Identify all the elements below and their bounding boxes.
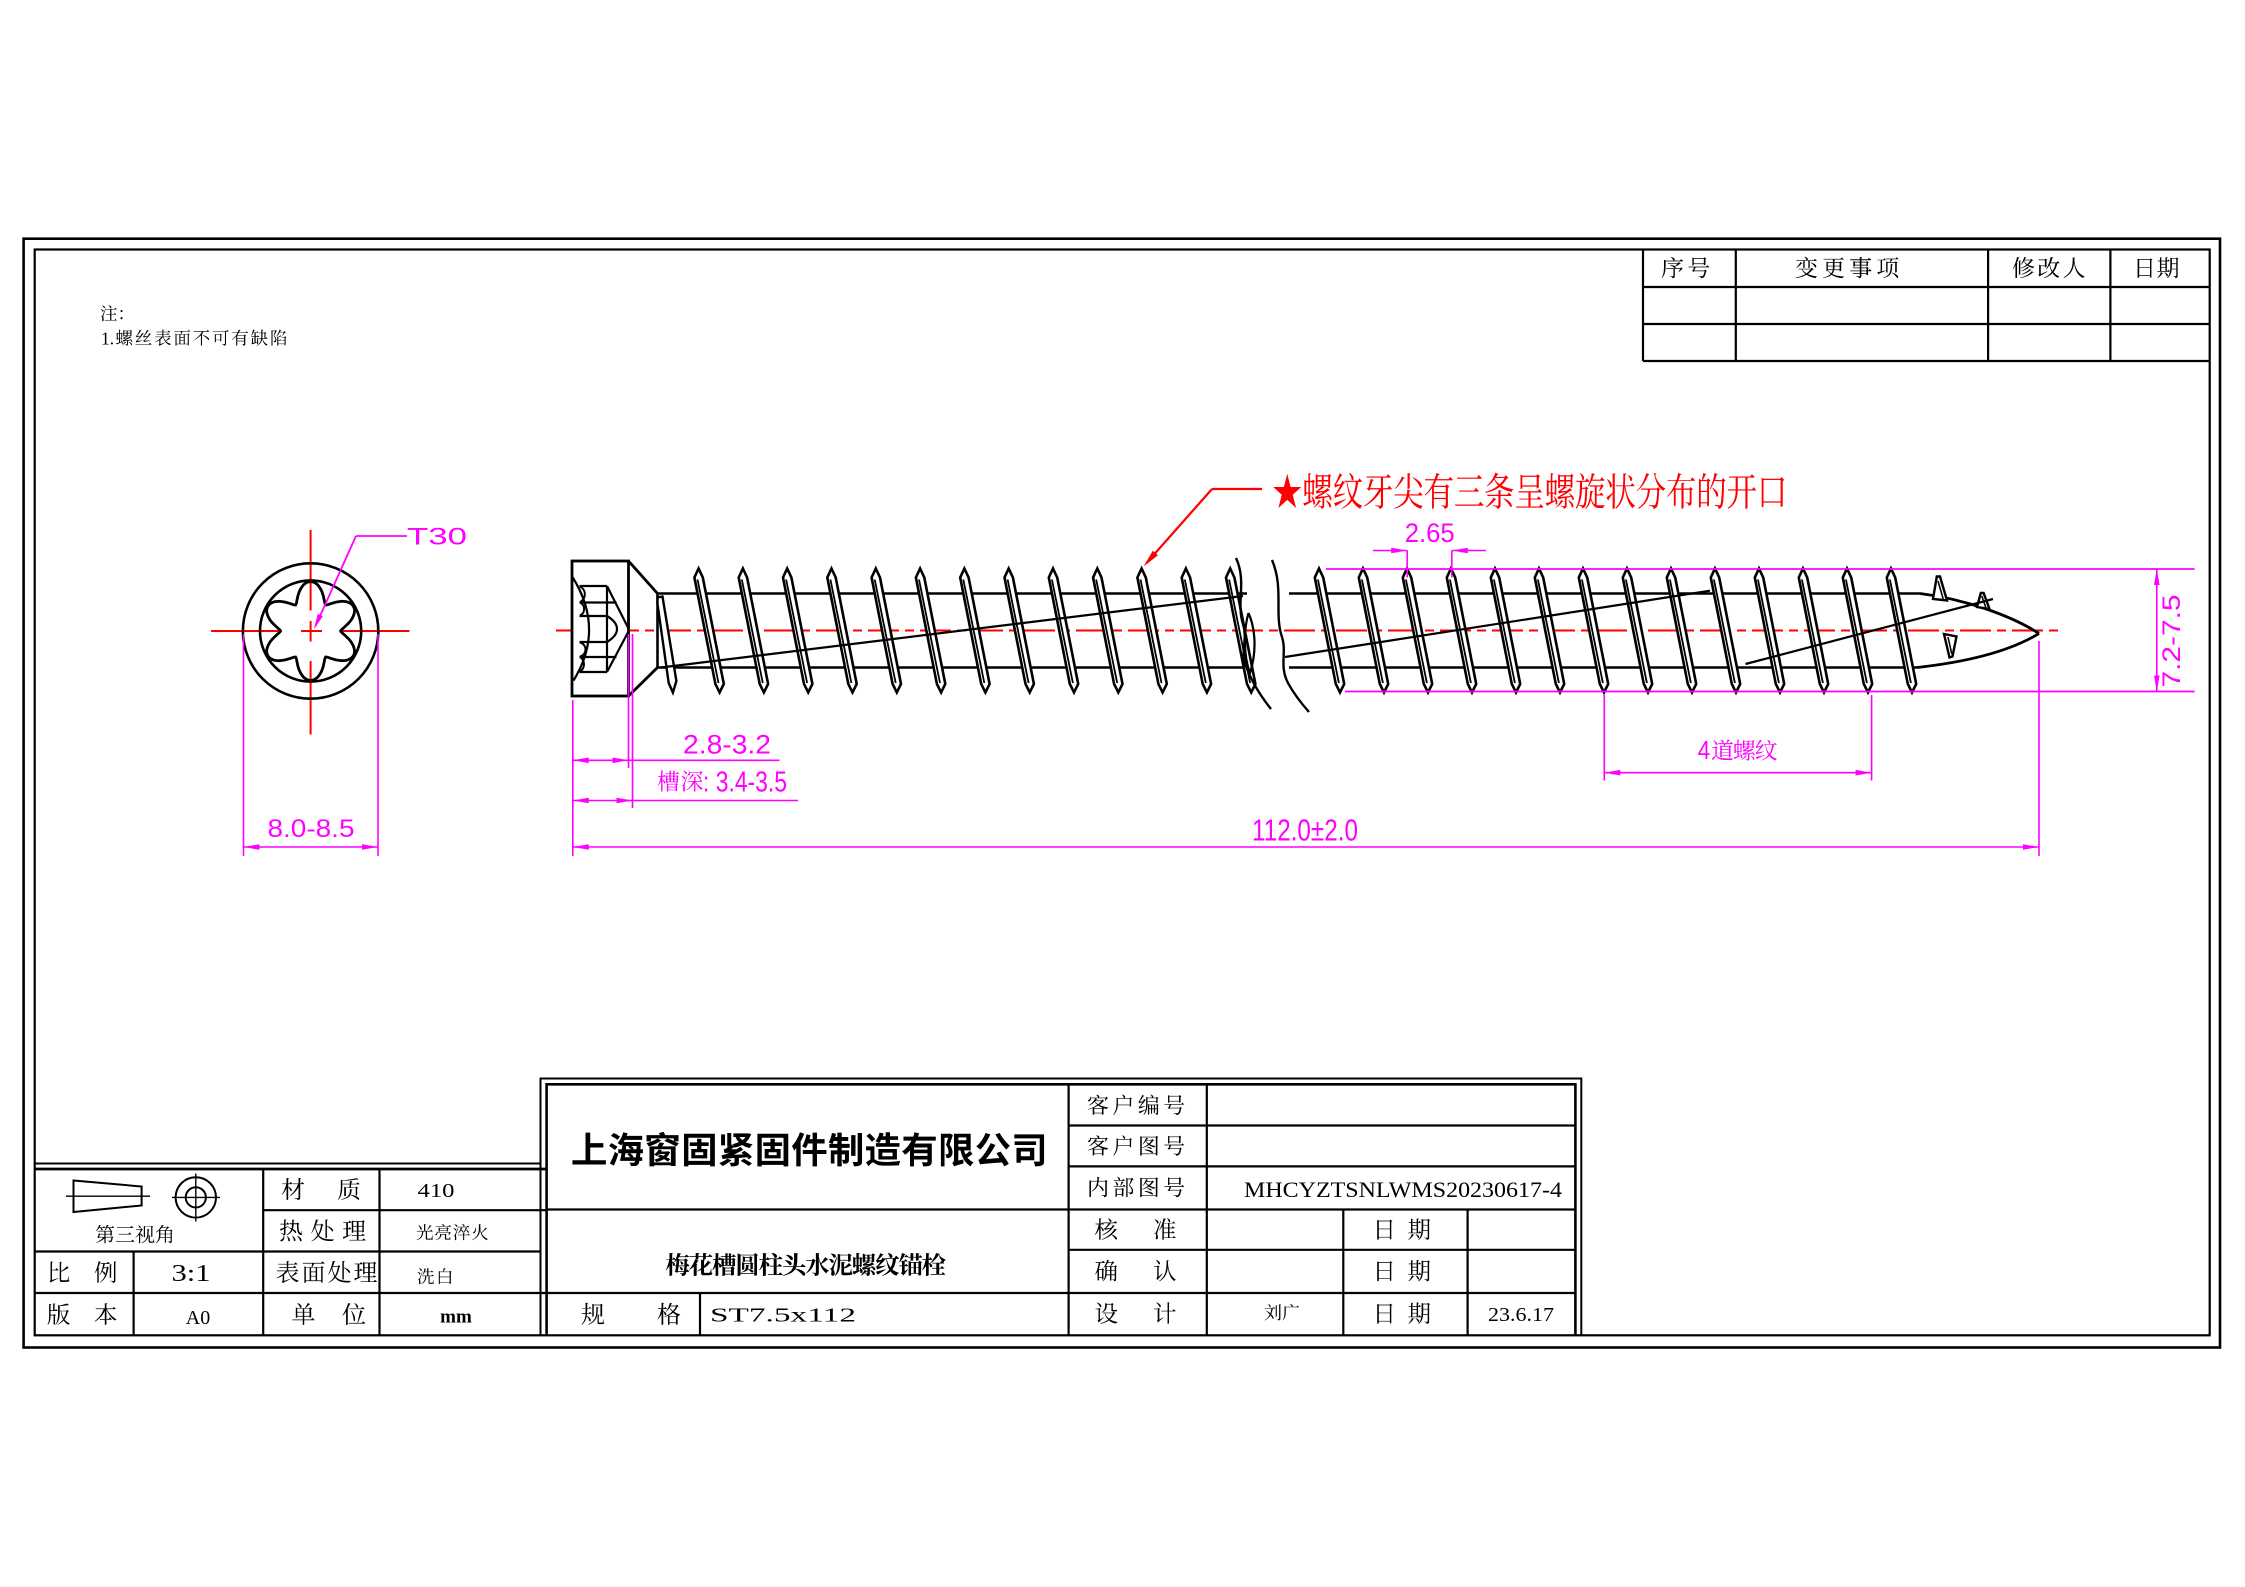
svg-text:8.0-8.5: 8.0-8.5 [268, 815, 355, 843]
svg-text:410: 410 [418, 1180, 455, 1202]
svg-text:3:1: 3:1 [172, 1261, 211, 1287]
svg-text:2.8-3.2: 2.8-3.2 [683, 730, 771, 760]
svg-text:mm: mm [440, 1307, 472, 1328]
svg-text:112.0±2.0: 112.0±2.0 [1252, 813, 1358, 848]
svg-text:: 3.4-3.5: : 3.4-3.5 [703, 767, 787, 799]
svg-text:ST7.5x112: ST7.5x112 [710, 1305, 856, 1327]
svg-text:2.65: 2.65 [1405, 518, 1455, 548]
svg-text:4: 4 [1698, 735, 1710, 765]
svg-text:7.2-7.5: 7.2-7.5 [2158, 595, 2186, 688]
svg-text:T30: T30 [407, 524, 467, 551]
svg-text:1.: 1. [101, 328, 114, 348]
svg-text:A0: A0 [186, 1307, 210, 1329]
svg-text:23.6.17: 23.6.17 [1488, 1304, 1554, 1326]
svg-text:MHCYZTSNLWMS20230617-4: MHCYZTSNLWMS20230617-4 [1244, 1177, 1562, 1202]
